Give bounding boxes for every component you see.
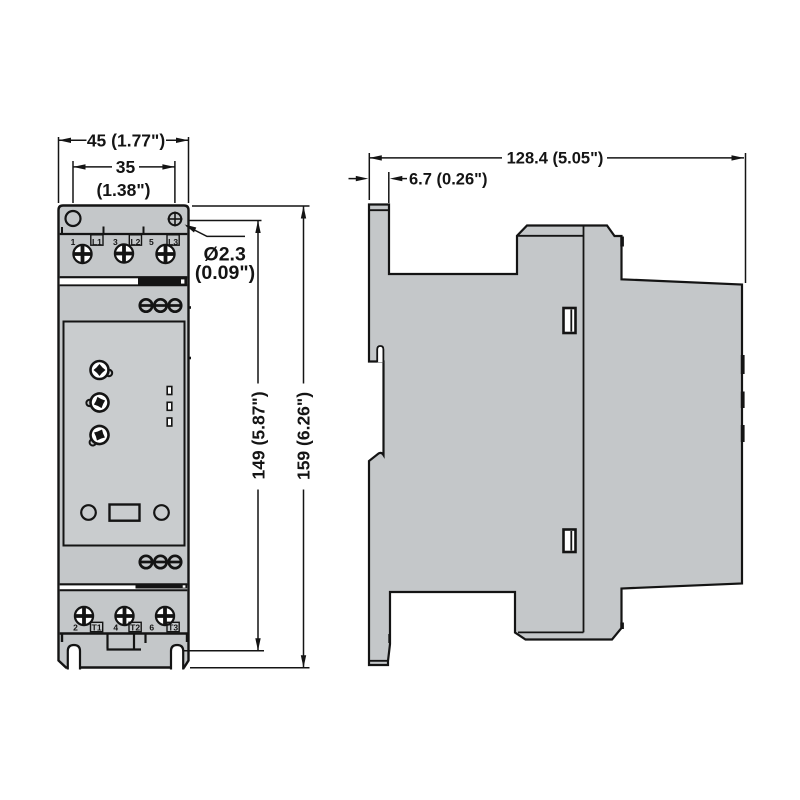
svg-text:4: 4 (113, 623, 118, 633)
svg-text:35: 35 (116, 157, 136, 177)
svg-text:5: 5 (149, 237, 154, 247)
svg-text:T3: T3 (168, 622, 178, 632)
svg-text:159 (6.26"): 159 (6.26") (293, 392, 313, 480)
svg-text:3: 3 (113, 237, 118, 247)
svg-text:L1: L1 (92, 237, 102, 247)
svg-text:T1: T1 (92, 622, 102, 632)
svg-text:2: 2 (73, 623, 78, 633)
svg-text:(1.38"): (1.38") (96, 180, 150, 200)
svg-text:6.7 (0.26"): 6.7 (0.26") (409, 170, 487, 188)
svg-text:1: 1 (71, 237, 76, 247)
svg-text:149 (5.87"): 149 (5.87") (248, 391, 268, 479)
svg-text:T2: T2 (130, 622, 140, 632)
svg-text:L2: L2 (130, 237, 140, 247)
svg-text:45 (1.77"): 45 (1.77") (87, 131, 165, 151)
svg-text:6: 6 (149, 623, 154, 633)
svg-text:(0.09"): (0.09") (195, 262, 255, 284)
svg-text:128.4 (5.05"): 128.4 (5.05") (507, 149, 604, 167)
